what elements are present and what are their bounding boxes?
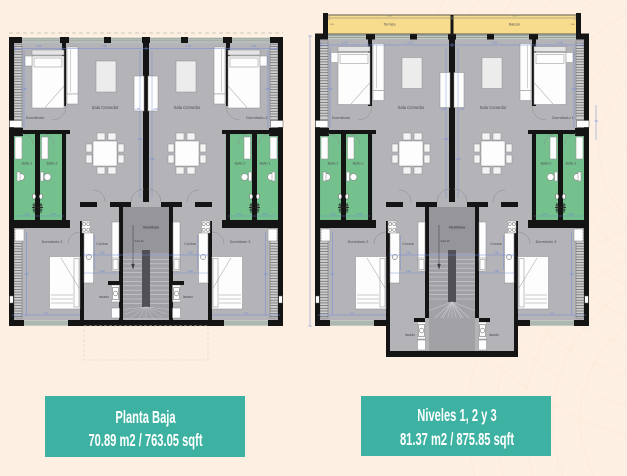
svg-text:3.00: 3.00 xyxy=(265,87,271,91)
svg-text:3.0: 3.0 xyxy=(570,272,574,276)
svg-text:1.3: 1.3 xyxy=(244,311,248,315)
svg-text:1.08: 1.08 xyxy=(356,212,362,216)
svg-text:3.00: 3.00 xyxy=(21,87,27,91)
svg-text:+.08: +.08 xyxy=(440,107,446,111)
svg-text:3.0: 3.0 xyxy=(264,272,268,276)
svg-text:1.08: 1.08 xyxy=(568,212,574,216)
svg-text:Planta Baja: Planta Baja xyxy=(115,407,176,427)
svg-text:Sala Comedor: Sala Comedor xyxy=(480,105,507,110)
svg-text:1.08: 1.08 xyxy=(50,212,56,216)
svg-text:Cocina: Cocina xyxy=(490,242,501,246)
svg-text:Baño 1: Baño 1 xyxy=(260,162,271,166)
svg-text:4.60: 4.60 xyxy=(149,157,155,161)
svg-text:lavado: lavado xyxy=(489,333,499,337)
svg-text:Sube 16: Sube 16 xyxy=(135,240,145,243)
svg-text:1.52: 1.52 xyxy=(236,212,242,216)
svg-text:1.08: 1.08 xyxy=(262,212,268,216)
svg-text:Baño 1: Baño 1 xyxy=(22,162,33,166)
svg-text:1.93: 1.93 xyxy=(36,44,42,48)
svg-text:1.52: 1.52 xyxy=(24,212,30,216)
svg-text:Dormitorio 1: Dormitorio 1 xyxy=(246,115,269,120)
svg-text:Baño 1: Baño 1 xyxy=(566,162,577,166)
svg-text:4.19: 4.19 xyxy=(185,44,191,48)
svg-text:7.37: 7.37 xyxy=(512,14,518,18)
svg-text:4.60: 4.60 xyxy=(137,137,143,141)
svg-text:1.98: 1.98 xyxy=(99,251,105,255)
svg-text:Niveles 1, 2 y 3: Niveles 1, 2 y 3 xyxy=(417,405,496,425)
svg-text:Cocina: Cocina xyxy=(402,242,413,246)
svg-text:7.37: 7.37 xyxy=(387,14,393,18)
svg-text:Terraza: Terraza xyxy=(384,23,396,27)
svg-text:+.08: +.08 xyxy=(134,107,140,111)
svg-text:1.93: 1.93 xyxy=(557,41,563,45)
svg-text:1.98: 1.98 xyxy=(493,251,499,255)
svg-text:Dormitorio 1: Dormitorio 1 xyxy=(552,115,575,120)
svg-text:Baño 2: Baño 2 xyxy=(541,162,552,166)
svg-text:3.0: 3.0 xyxy=(331,272,335,276)
svg-text:Baño 1: Baño 1 xyxy=(328,162,339,166)
svg-text:4.60: 4.60 xyxy=(443,137,449,141)
svg-text:Sube 16: Sube 16 xyxy=(441,240,451,243)
svg-text:Baño 2: Baño 2 xyxy=(47,162,58,166)
svg-text:Dormitorio 3: Dormitorio 3 xyxy=(230,240,251,244)
svg-text:3.00: 3.00 xyxy=(327,87,333,91)
svg-text:Sala Comedor: Sala Comedor xyxy=(174,105,201,110)
svg-text:lavado: lavado xyxy=(183,295,193,299)
svg-text:70.89 m2 / 763.05 sqft: 70.89 m2 / 763.05 sqft xyxy=(88,430,202,450)
svg-text:1.3: 1.3 xyxy=(44,311,48,315)
svg-text:1.52: 1.52 xyxy=(330,212,336,216)
svg-text:Sala Comedor: Sala Comedor xyxy=(92,105,119,110)
svg-text:1.98: 1.98 xyxy=(493,269,499,273)
svg-text:Dormitorio: Dormitorio xyxy=(26,115,45,120)
svg-text:1.3: 1.3 xyxy=(350,311,354,315)
svg-text:Cocina: Cocina xyxy=(184,242,195,246)
svg-text:Baño 2: Baño 2 xyxy=(353,162,364,166)
svg-text:+.08: +.08 xyxy=(458,107,464,111)
svg-text:Dormitorio: Dormitorio xyxy=(332,115,351,120)
svg-text:1.98: 1.98 xyxy=(99,269,105,273)
svg-text:Dormitorio 2: Dormitorio 2 xyxy=(348,240,369,244)
svg-text:Vestíbulo: Vestíbulo xyxy=(143,225,160,230)
svg-text:4.19: 4.19 xyxy=(407,41,413,45)
svg-text:Baño 2: Baño 2 xyxy=(235,162,246,166)
svg-text:Dormitorio 2: Dormitorio 2 xyxy=(42,240,63,244)
svg-text:lavado: lavado xyxy=(405,333,415,337)
svg-text:+.08: +.08 xyxy=(152,107,158,111)
svg-text:1.98: 1.98 xyxy=(405,251,411,255)
svg-text:4.19: 4.19 xyxy=(101,44,107,48)
svg-text:Balcón: Balcón xyxy=(509,23,520,27)
svg-text:3.00: 3.00 xyxy=(571,87,577,91)
svg-text:4.19: 4.19 xyxy=(491,41,497,45)
svg-text:1.52: 1.52 xyxy=(542,212,548,216)
svg-text:1.98: 1.98 xyxy=(405,269,411,273)
svg-text:4.60: 4.60 xyxy=(455,157,461,161)
svg-text:Sala Comedor: Sala Comedor xyxy=(398,105,425,110)
svg-text:1.98: 1.98 xyxy=(187,251,193,255)
svg-text:1.3: 1.3 xyxy=(550,311,554,315)
svg-text:3.0: 3.0 xyxy=(25,272,29,276)
svg-text:1.98: 1.98 xyxy=(187,269,193,273)
svg-text:Cocina: Cocina xyxy=(96,242,107,246)
svg-text:lavado: lavado xyxy=(99,295,109,299)
svg-text:1.93: 1.93 xyxy=(251,44,257,48)
svg-text:81.37 m2 / 875.85 sqft: 81.37 m2 / 875.85 sqft xyxy=(400,429,514,449)
svg-text:Vestíbulo: Vestíbulo xyxy=(449,225,466,230)
svg-text:1.93: 1.93 xyxy=(342,41,348,45)
svg-text:Dormitorio 3: Dormitorio 3 xyxy=(536,240,557,244)
